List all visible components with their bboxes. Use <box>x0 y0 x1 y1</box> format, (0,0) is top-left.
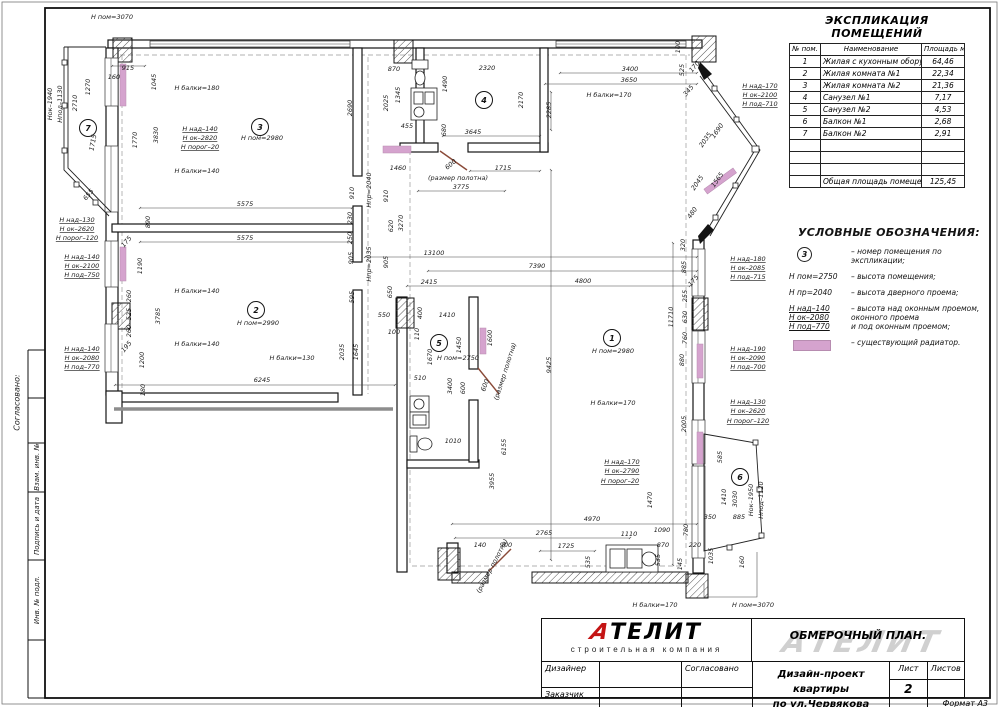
dim-label: 1490 <box>441 76 449 93</box>
dim-label: 2035 <box>338 344 346 361</box>
dim-label: 100 <box>388 328 400 336</box>
dim-label: Н балки=170 <box>590 399 635 407</box>
dim-label: 3400 <box>622 65 639 73</box>
dim-label: 1090 <box>654 526 671 534</box>
dim-label: Н над–180 <box>730 255 765 263</box>
dim-label: 510 <box>414 374 426 382</box>
dim-label: 525 <box>678 64 686 76</box>
explication-title: ЭКСПЛИКАЦИЯ ПОМЕЩЕНИЙ <box>789 14 965 40</box>
company-logo: АТЕЛИТ строительная компания <box>542 619 752 661</box>
room-number: 2 <box>253 306 259 315</box>
dim-label: 1460 <box>390 164 407 172</box>
dim-label: 3955 <box>488 473 496 490</box>
dim-label: 195 <box>119 339 133 354</box>
dim-label: 11710 <box>667 307 675 328</box>
approved-label: Согласовано <box>682 662 752 687</box>
dim-label: 1270 <box>84 79 92 96</box>
dim-label: (размер полотна) <box>492 342 518 402</box>
dim-label: 1410 <box>439 311 456 319</box>
dim-label: 1715 <box>88 134 99 152</box>
dim-label: 455 <box>401 122 413 130</box>
dim-label: 3030 <box>731 491 739 508</box>
dim-label: 255 <box>681 290 689 302</box>
dim-label: 2320 <box>479 64 496 72</box>
designer-value <box>600 662 682 687</box>
dim-label: 4800 <box>575 277 592 285</box>
sheets-label: Листов <box>928 662 965 679</box>
dim-label: Нпр=2035 <box>365 246 373 281</box>
dim-label: Н над–130 <box>730 398 765 406</box>
dim-label: 1690 <box>709 122 725 140</box>
dim-label: 870 <box>388 65 400 73</box>
dim-label: Н пом=2980 <box>592 347 634 355</box>
dim-label: 1715 <box>495 164 512 172</box>
dim-label: 260 <box>125 325 133 337</box>
dim-label: 175 <box>119 234 133 249</box>
dim-label: 2005 <box>680 416 688 433</box>
dim-label: Н порог–20 <box>601 477 639 485</box>
legend-item-door-height: Н пр=2040 – высота дверного проема; <box>789 288 989 297</box>
sheet-number: 2 <box>890 680 928 707</box>
dim-label: Н пом=2990 <box>237 319 279 327</box>
dim-label: 180 <box>139 384 147 396</box>
dim-label: Н ок–2100 <box>65 262 100 270</box>
dim-label: 1190 <box>136 258 144 275</box>
dim-label: 220 <box>689 541 701 549</box>
dim-label: 6155 <box>500 439 508 456</box>
dim-label: 1770 <box>131 132 139 149</box>
dim-label: Н пом=2750 <box>437 354 479 362</box>
dim-label: 885 <box>680 261 688 273</box>
dim-label: 230 <box>346 212 354 224</box>
dim-label: 3650 <box>621 76 638 84</box>
dim-label: Н ок–2080 <box>65 354 100 362</box>
dim-label: 1410 <box>720 489 728 506</box>
dim-label: 1045 <box>150 74 158 91</box>
dim-label: Н пом=2980 <box>241 134 283 142</box>
dim-label: 160 <box>108 73 120 81</box>
table-row: 7Балкон №22,91 <box>790 128 965 140</box>
dim-label: Н балки=180 <box>174 84 219 92</box>
dim-label: Нпод–1130 <box>56 85 64 122</box>
dim-label: 2415 <box>421 278 438 286</box>
dim-label: 890 <box>144 216 152 228</box>
dim-label: 2285 <box>545 102 553 119</box>
explication-table: ЭКСПЛИКАЦИЯ ПОМЕЩЕНИЙ № пом. Наименовани… <box>789 14 965 188</box>
dim-label: 260 <box>125 290 133 302</box>
project-title: Дизайн-проект квартиры по ул.Червякова <box>753 662 890 707</box>
dim-label: Н ок–2100 <box>743 91 778 99</box>
dim-label: 140 <box>474 541 486 549</box>
table-empty-row <box>790 140 965 152</box>
table-row: 3Жилая комната №221,36 <box>790 80 965 92</box>
dim-label: 250 <box>346 232 354 244</box>
dim-label: 650 <box>386 286 394 298</box>
dim-label: Н пом=3070 <box>732 601 774 609</box>
legend-item-radiator: – существующий радиатор. <box>789 338 989 351</box>
dim-label: 2025 <box>382 95 390 112</box>
dim-label: 3775 <box>453 183 470 191</box>
table-empty-row <box>790 152 965 164</box>
dim-label: 2710 <box>71 95 79 112</box>
dim-label: Н над–140 <box>64 253 99 261</box>
radiator-swatch <box>793 340 831 351</box>
dim-label: Нпр=2040 <box>365 172 373 207</box>
legend: УСЛОВНЫЕ ОБОЗНАЧЕНИЯ: 3 – номер помещени… <box>789 226 989 358</box>
dim-label: 320 <box>679 239 687 251</box>
dim-label: 4970 <box>584 515 601 523</box>
dim-label: Н балки=140 <box>174 287 219 295</box>
room-number: 7 <box>85 124 91 133</box>
dim-label: 1450 <box>455 337 463 354</box>
dim-label: Н ок–2820 <box>183 134 218 142</box>
dim-label: 760 <box>681 332 689 344</box>
dim-label: Н балки=140 <box>174 167 219 175</box>
dim-label: 595 <box>348 291 356 303</box>
dim-label: Н балки=140 <box>174 340 219 348</box>
dim-label: 480 <box>686 205 700 220</box>
dim-label: Н под–700 <box>730 363 765 371</box>
dim-label: Н порог–120 <box>56 234 98 242</box>
dim-label: 680 <box>440 124 448 136</box>
dim-label: 1035 <box>707 548 715 565</box>
dim-label: 535 <box>584 556 592 568</box>
room-number: 5 <box>436 339 442 348</box>
dim-label: 1600 <box>486 330 494 347</box>
dim-label: Н над–170 <box>604 458 639 466</box>
dim-label: 535 <box>654 554 662 566</box>
dim-label: Нок–1940 <box>46 88 54 121</box>
dim-label: 2045 <box>689 174 705 192</box>
table-total-row: Общая площадь помещений 125,45 <box>790 176 965 188</box>
dim-label: 600 <box>479 378 491 392</box>
designer-label: Дизайнер <box>542 662 600 687</box>
dim-label: Н над–140 <box>182 125 217 133</box>
dim-label: 1200 <box>138 352 146 369</box>
dim-label: 2170 <box>517 92 525 109</box>
dim-label: Нпод–1120 <box>757 481 765 518</box>
dim-label: 1110 <box>621 530 638 538</box>
dim-label: 585 <box>716 451 724 463</box>
dim-label: 2690 <box>346 100 354 117</box>
total-value: 125,45 <box>922 176 965 188</box>
dim-label: 780 <box>682 524 690 536</box>
dim-label: 910 <box>348 187 356 199</box>
table-row: 1Жилая с кухонным оборудованием64,46 <box>790 56 965 68</box>
dim-label: 400 <box>416 307 424 319</box>
legend-item-room-number: 3 – номер помещения по экспликации; <box>789 247 989 265</box>
dim-label: 350 <box>704 513 716 521</box>
dim-label: 6245 <box>254 376 271 384</box>
dim-label: (размер полотна) <box>428 174 488 182</box>
dim-label: Н над–170 <box>742 82 777 90</box>
dim-label: Н ок–2790 <box>605 467 640 475</box>
dim-label: 2765 <box>536 529 553 537</box>
dim-label: Н над–190 <box>730 345 765 353</box>
dim-label: 1345 <box>394 87 402 104</box>
dim-label: Н балки=170 <box>586 91 631 99</box>
dim-label: 600 <box>459 382 467 394</box>
dim-label: 620 <box>387 220 395 232</box>
dim-label: Н под–715 <box>730 273 765 281</box>
table-row: 4Санузел №17,17 <box>790 92 965 104</box>
dim-label: 870 <box>657 541 669 549</box>
document-title: ОБМЕРОЧНЫЙ ПЛАН. <box>752 629 964 642</box>
sheet-label: Лист <box>890 662 928 679</box>
dim-label: 880 <box>678 354 686 366</box>
dim-label: 915 <box>122 64 134 72</box>
dim-label: 7390 <box>529 262 546 270</box>
room-number: 3 <box>257 123 263 132</box>
dim-label: 3830 <box>152 127 160 144</box>
total-label: Общая площадь помещений <box>821 176 922 188</box>
dim-label: Н ок–2620 <box>731 407 766 415</box>
dim-label: Н над–140 <box>64 345 99 353</box>
dim-label: 885 <box>733 513 745 521</box>
dim-label: 110 <box>413 328 421 340</box>
room-number: 1 <box>609 334 615 343</box>
dim-label: Н ок–2090 <box>731 354 766 362</box>
dim-label: 1725 <box>558 542 575 550</box>
dim-label: Нок–1950 <box>747 484 755 517</box>
dim-label: 3785 <box>154 308 162 325</box>
dim-label: Н ок–2085 <box>731 264 766 272</box>
logo-subtitle: строительная компания <box>542 645 751 654</box>
dim-label: 5575 <box>237 234 254 242</box>
dim-label: 600 <box>443 157 458 171</box>
dim-label: 1670 <box>426 349 434 366</box>
dim-label: Н под–750 <box>64 271 99 279</box>
room-number-symbol: 3 <box>797 247 812 262</box>
dim-label: 550 <box>378 311 390 319</box>
legend-item-room-height: Н пом=2750 – высота помещения; <box>789 272 989 281</box>
dim-label: 9425 <box>545 357 553 374</box>
dim-label: 905 <box>382 256 390 268</box>
client-label: Заказчик <box>542 688 600 707</box>
dim-label: Н балки=170 <box>632 601 677 609</box>
client-value <box>600 688 682 707</box>
dim-label: 910 <box>382 190 390 202</box>
dim-label: Н балки=130 <box>269 354 314 362</box>
dim-label: 630 <box>681 311 689 323</box>
dim-label: 525 <box>125 308 133 320</box>
format-label: Формат А3 <box>942 699 988 707</box>
dim-label: 3645 <box>465 128 482 136</box>
table-row: 5Санузел №24,53 <box>790 104 965 116</box>
dim-label: 3270 <box>397 215 405 232</box>
dim-label: Н ок–2620 <box>60 225 95 233</box>
dim-label: Н пом=3070 <box>91 13 133 21</box>
title-block: АТЕЛИТ строительная компания АТЕЛИТ ОБМЕ… <box>541 618 965 698</box>
table-row: 6Балкон №12,68 <box>790 116 965 128</box>
dim-label: 905 <box>347 252 355 264</box>
legend-item-window-heights: Н над–140 Н ок–2080 Н под–770 – высота н… <box>789 304 989 331</box>
dim-label: 1010 <box>445 437 462 445</box>
dim-label: Н под–770 <box>64 363 99 371</box>
col-header-number: № пом. <box>790 44 821 56</box>
approved-value <box>682 688 752 707</box>
dim-label: 1645 <box>352 344 360 361</box>
dim-label: Н порог–120 <box>727 417 769 425</box>
dim-label: 100 <box>674 41 682 53</box>
dim-label: 145 <box>676 558 684 570</box>
dim-label: Н порог–20 <box>181 143 219 151</box>
dim-label: 13100 <box>424 249 445 257</box>
dim-label: 345 <box>681 83 695 98</box>
table-row: 2Жилая комната №122,34 <box>790 68 965 80</box>
dim-label: 160 <box>738 556 746 568</box>
dim-label: 1470 <box>646 492 654 509</box>
dim-label: Н над–130 <box>59 216 94 224</box>
col-header-area: Площадь м.кв. <box>922 44 965 56</box>
sidebar-approved-label: Согласовано: <box>13 358 22 448</box>
drawing-sheet: 1234567 Н пом=3070915160127010452710Нок–… <box>0 0 1000 707</box>
room-number: 4 <box>480 96 487 105</box>
col-header-name: Наименование <box>821 44 922 56</box>
room-number: 6 <box>737 473 743 482</box>
sidebar-box-inv: Инв. № подл. <box>33 555 41 645</box>
dim-label: Н под–710 <box>742 100 777 108</box>
dim-label: 5575 <box>237 200 254 208</box>
table-empty-row <box>790 164 965 176</box>
legend-title: УСЛОВНЫЕ ОБОЗНАЧЕНИЯ: <box>789 226 989 239</box>
dim-label: 3400 <box>446 378 454 395</box>
